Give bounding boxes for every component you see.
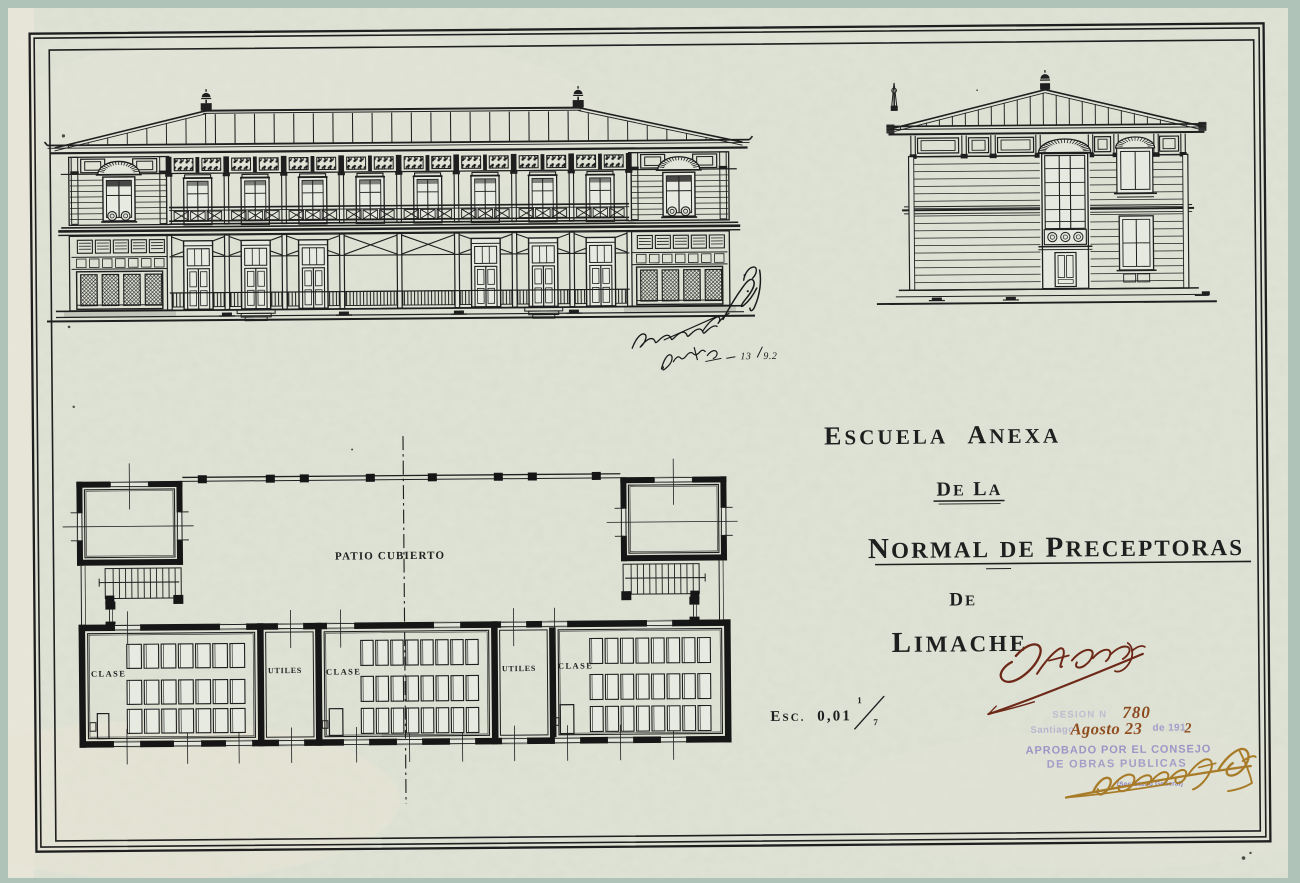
svg-text:CLASE: CLASE [326, 666, 361, 676]
svg-text:UTILES: UTILES [502, 664, 536, 673]
svg-text:7: 7 [873, 717, 878, 727]
svg-text:1: 1 [857, 695, 862, 705]
svg-text:Santiago: Santiago [1030, 724, 1074, 735]
svg-text:DE: DE [949, 589, 977, 610]
svg-text:UTILES: UTILES [268, 666, 302, 675]
svg-text:APROBADO POR EL CONSEJO: APROBADO POR EL CONSEJO [1026, 743, 1212, 757]
svg-text:13: 13 [740, 351, 751, 362]
svg-text:CLASE: CLASE [558, 660, 593, 670]
svg-text:CLASE: CLASE [91, 668, 126, 678]
svg-text:Agosto 23: Agosto 23 [1069, 719, 1142, 739]
svg-text:DE OBRAS PUBLICAS: DE OBRAS PUBLICAS [1047, 758, 1187, 771]
svg-text:DE LA: DE LA [936, 478, 1002, 501]
svg-text:PATIO CUBIERTO: PATIO CUBIERTO [335, 550, 445, 563]
svg-text:LIMACHE: LIMACHE [892, 626, 1028, 659]
svg-text:9.2: 9.2 [763, 351, 777, 362]
svg-text:de 191: de 191 [1152, 723, 1186, 734]
svg-text:2: 2 [1183, 721, 1191, 736]
